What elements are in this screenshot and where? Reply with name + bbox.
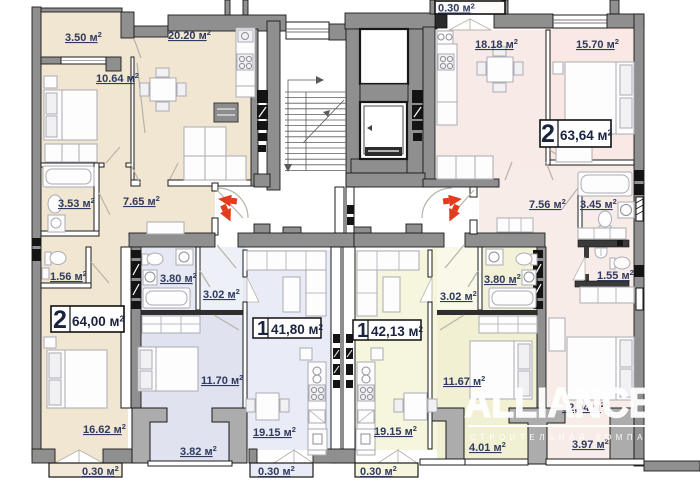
svg-text:3.53 м2: 3.53 м2 (58, 196, 95, 210)
svg-text:3.80 м2: 3.80 м2 (160, 271, 197, 285)
svg-text:ALLIANCE: ALLIANCE (464, 379, 654, 426)
svg-text:1: 1 (257, 318, 268, 340)
svg-text:2: 2 (541, 120, 555, 148)
svg-text:0.30 м2: 0.30 м2 (82, 464, 119, 478)
svg-text:19.15 м2: 19.15 м2 (374, 424, 417, 438)
svg-text:7.56 м2: 7.56 м2 (529, 197, 566, 211)
svg-text:63,64 м2: 63,64 м2 (560, 128, 613, 144)
svg-text:0.30 м2: 0.30 м2 (258, 464, 295, 478)
svg-text:16.62 м2: 16.62 м2 (83, 422, 126, 436)
svg-text:15.70 м2: 15.70 м2 (576, 37, 619, 51)
svg-text:3.80 м2: 3.80 м2 (484, 272, 521, 286)
svg-text:1.55 м2: 1.55 м2 (597, 268, 634, 282)
svg-text:11.70 м2: 11.70 м2 (201, 373, 243, 387)
svg-text:0.30 м2: 0.30 м2 (438, 2, 475, 15)
svg-text:10.64 м2: 10.64 м2 (96, 71, 139, 85)
svg-text:7.65 м2: 7.65 м2 (123, 194, 160, 208)
svg-text:3.02 м2: 3.02 м2 (203, 287, 240, 301)
svg-text:3.02 м2: 3.02 м2 (440, 289, 477, 303)
svg-text:42,13 м2: 42,13 м2 (371, 324, 424, 339)
svg-text:3.50 м2: 3.50 м2 (65, 30, 102, 44)
svg-text:2: 2 (53, 306, 67, 334)
svg-text:1: 1 (357, 320, 368, 342)
svg-text:41,80 м2: 41,80 м2 (271, 322, 324, 337)
svg-text:64,00 м2: 64,00 м2 (72, 314, 125, 330)
svg-text:3.82 м2: 3.82 м2 (180, 444, 217, 458)
svg-text:1.56 м2: 1.56 м2 (50, 269, 87, 283)
svg-text:20.20 м2: 20.20 м2 (168, 28, 211, 42)
svg-text:4.01 м2: 4.01 м2 (469, 440, 506, 454)
svg-text:СТРОИТЕЛЬНАЯ КОМПАНИЯ: СТРОИТЕЛЬНАЯ КОМПАНИЯ (470, 433, 678, 442)
svg-text:19.15 м2: 19.15 м2 (253, 425, 296, 439)
svg-text:0.30 м2: 0.30 м2 (360, 464, 397, 478)
svg-text:3.45 м2: 3.45 м2 (580, 197, 617, 211)
svg-text:18.18 м2: 18.18 м2 (475, 37, 518, 51)
